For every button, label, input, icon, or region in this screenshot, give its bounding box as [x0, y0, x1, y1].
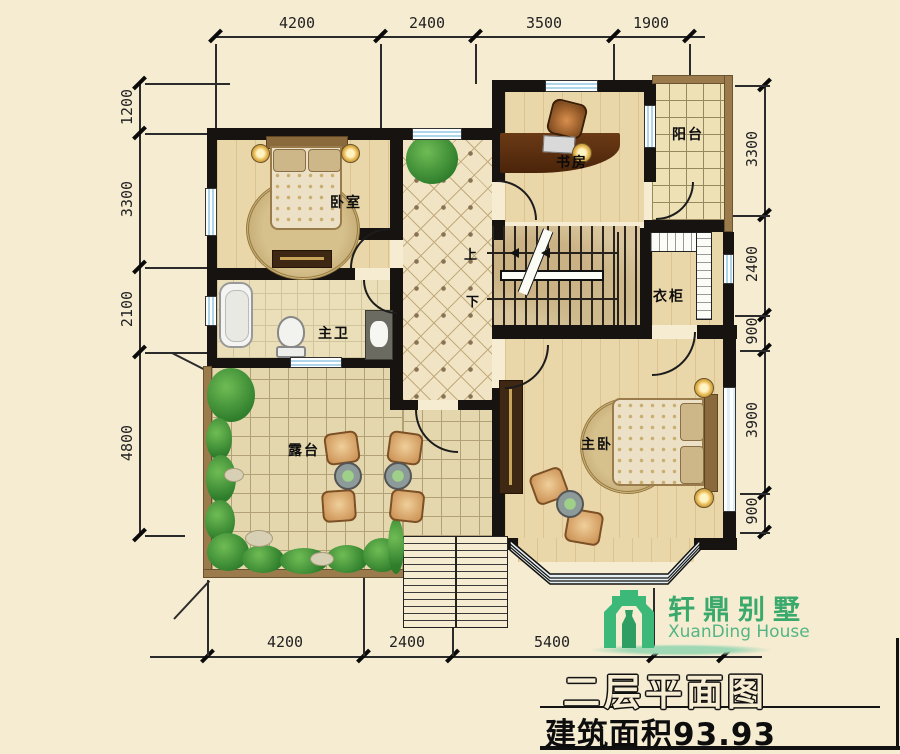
dim-left-4: 4800 — [118, 413, 136, 473]
balcony-label: 阳台 — [672, 124, 704, 144]
study-label: 书房 — [556, 152, 588, 172]
bathroom-sink — [370, 321, 388, 347]
dim-line-bottom — [150, 656, 762, 658]
dim-line-left — [139, 83, 141, 535]
dim-extension — [145, 267, 207, 269]
terrace-chair — [323, 430, 361, 466]
bathroom-vanity — [365, 310, 393, 360]
wall — [492, 325, 652, 339]
dim-extension — [475, 44, 477, 84]
stair-arrow-icon — [510, 248, 519, 258]
stair-flight-edge — [487, 298, 617, 300]
bathroom-window-left — [205, 296, 217, 326]
terrace-stone — [245, 530, 273, 547]
dim-right-2: 2400 — [743, 234, 761, 294]
terrace-stone — [224, 468, 244, 482]
stair-landing-edge — [617, 232, 619, 325]
balcony-railing-top — [652, 75, 733, 84]
stair-tread — [624, 226, 626, 325]
dim-right-1: 3300 — [743, 119, 761, 179]
stair-tread — [492, 226, 494, 325]
closet-unit-right — [696, 232, 712, 320]
master-table — [556, 490, 584, 518]
logo-subtitle-text: XuanDing House — [668, 622, 810, 642]
dim-extension — [145, 83, 230, 85]
wall — [644, 92, 656, 105]
terrace-stone — [310, 552, 334, 566]
stair-tread — [635, 226, 637, 325]
dim-extension — [689, 44, 691, 75]
dim-top-4: 1900 — [621, 14, 681, 32]
wall — [207, 128, 217, 368]
closet-window — [723, 254, 734, 284]
logo-gate-icon — [598, 584, 660, 650]
bedroom-label: 卧室 — [330, 192, 362, 212]
stair-flight-edge — [487, 252, 617, 254]
master-pillow — [680, 446, 704, 484]
master-bedroom-label: 主卧 — [581, 434, 613, 454]
dim-right-4: 3900 — [743, 390, 761, 450]
area-note: 建筑面积93.93 — [545, 709, 776, 754]
dim-extension — [740, 532, 770, 534]
master-bed-headboard — [704, 394, 718, 492]
dim-top-2: 2400 — [397, 14, 457, 32]
exterior-stairs-divider — [455, 536, 457, 628]
cabinet-handle — [509, 389, 512, 485]
terrace-table — [384, 462, 412, 490]
bedroom-dresser — [272, 250, 332, 268]
terrace-chair — [388, 488, 425, 523]
bay-window — [500, 534, 710, 588]
floorplan-page: { "plan_title": "二层平面图", "area_note": "建… — [0, 0, 900, 750]
dim-extension — [735, 315, 770, 317]
bedroom-pillow — [308, 149, 341, 172]
bedroom-pillow — [273, 149, 306, 172]
dim-extension — [613, 44, 615, 80]
bathtub — [219, 282, 253, 348]
dim-left-2: 3300 — [118, 169, 136, 229]
dim-extension — [215, 44, 217, 128]
wall — [492, 92, 505, 128]
closet-label: 衣柜 — [653, 286, 685, 306]
dim-leader — [173, 580, 210, 619]
dim-extension — [207, 580, 209, 656]
terrace-plants — [388, 518, 404, 574]
bathtub-basin — [225, 290, 249, 342]
wall — [644, 148, 656, 182]
dim-left-1: 1200 — [118, 77, 136, 137]
dim-extension — [452, 628, 454, 656]
wall — [390, 400, 418, 410]
master-pillow — [680, 403, 704, 441]
bathroom-label: 主卫 — [318, 323, 350, 343]
terrace-label: 露台 — [288, 440, 320, 460]
dim-extension — [740, 350, 770, 352]
dim-right-3: 900 — [743, 301, 761, 361]
wall — [723, 332, 736, 387]
wall — [656, 220, 733, 232]
dim-extension — [730, 215, 770, 217]
study-balcony-window — [644, 105, 656, 148]
terrace-plants — [207, 533, 249, 571]
bathroom-window-bottom — [290, 357, 342, 368]
dim-extension — [380, 44, 382, 128]
master-bedroom-window — [723, 387, 736, 512]
terrace-plants — [207, 368, 255, 422]
stair-down-label: 下 — [466, 291, 479, 310]
stair-up-label: 上 — [464, 244, 477, 263]
dim-extension — [740, 493, 770, 495]
terrace-chair — [321, 489, 357, 523]
dim-left-3: 2100 — [118, 279, 136, 339]
master-tv-cabinet — [499, 380, 523, 494]
bedroom-lamp — [341, 144, 360, 163]
balcony-railing-right — [724, 75, 733, 232]
terrace-table — [334, 462, 362, 490]
stair-tread — [613, 226, 615, 325]
stair-handrail — [500, 270, 604, 281]
dim-top-1: 4200 — [267, 14, 327, 32]
hallway-window — [412, 128, 462, 140]
dim-top-3: 3500 — [514, 14, 574, 32]
terrace-chair — [386, 430, 424, 466]
dim-line-top — [215, 36, 705, 38]
dim-bottom-1: 4200 — [255, 633, 315, 651]
wall — [390, 140, 403, 228]
terrace-plants — [242, 545, 284, 573]
toilet — [277, 316, 305, 348]
bedroom-lamp — [251, 144, 270, 163]
dim-extension — [363, 578, 365, 656]
dim-extension — [145, 133, 207, 135]
bedroom-window — [205, 188, 217, 236]
dim-bottom-2: 2400 — [377, 633, 437, 651]
stair-arrow-icon — [541, 248, 550, 258]
dim-bottom-3: 5400 — [522, 633, 582, 651]
master-lamp — [694, 488, 714, 508]
frame-line-right — [896, 638, 899, 750]
wall — [723, 232, 734, 254]
dim-extension — [735, 85, 770, 87]
hallway-plant — [406, 134, 458, 184]
master-lamp — [694, 378, 714, 398]
dresser-handle — [280, 257, 324, 260]
terrace-plants — [206, 418, 232, 460]
study-window — [545, 80, 598, 92]
plan-title: 二层平面图 — [563, 662, 768, 716]
dim-extension — [145, 535, 185, 537]
